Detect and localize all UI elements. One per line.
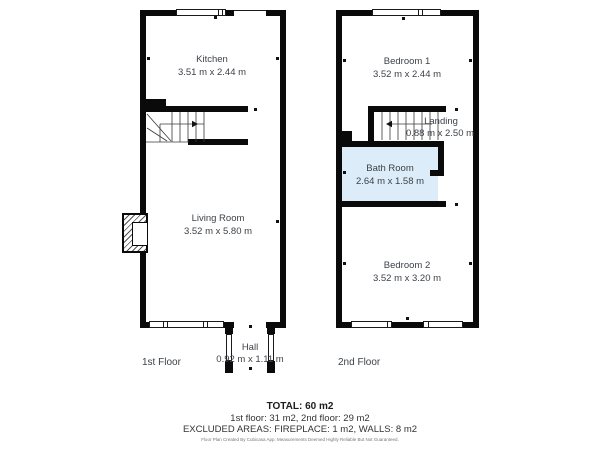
room-label-bath-room: Bath Room [366,164,414,174]
wall [140,10,176,16]
wall-opening-edge [234,10,266,11]
wall [140,10,146,328]
floor-plan-page: Kitchen 3.51 m x 2.44 m Living Room 3.52… [0,0,600,450]
wall [463,322,479,328]
room-dims-landing: 0.88 m x 2.50 m [406,129,474,139]
room-dims-kitchen: 3.51 m x 2.44 m [178,68,246,78]
tick [469,262,472,265]
room-dims-living-room: 3.52 m x 5.80 m [184,227,252,237]
window-mullion [428,322,429,327]
tick [455,108,458,111]
stair-direction-arrow [386,121,392,127]
room-label-living-room: Living Room [192,214,245,224]
wall [140,322,149,328]
wall [473,10,479,328]
window [149,321,224,328]
window-mullion [222,10,223,15]
window-mullion [203,322,204,327]
tick [343,262,346,265]
room-label-bedroom-2: Bedroom 2 [384,261,430,271]
floor-label-2nd: 2nd Floor [338,357,380,368]
bathroom-wall [342,201,446,207]
wall [336,10,342,328]
window [176,9,226,16]
stair-direction-arrow [192,121,198,127]
tick [455,203,458,206]
wall-notch [342,131,352,141]
floor-label-1st: 1st Floor [142,357,181,368]
wall [441,10,479,16]
window [351,321,392,328]
window-mullion [163,322,164,327]
hall-jamb [267,322,275,334]
tick [254,108,257,111]
summary-floor-areas: 1st floor: 31 m2, 2nd floor: 29 m2 [0,413,600,424]
wall [336,10,373,16]
tick [469,59,472,62]
tick [402,17,405,20]
tick [406,317,409,320]
tick [147,57,150,60]
tick [343,171,346,174]
tick [276,220,279,223]
tick [276,57,279,60]
stair-wall-notch [146,99,166,106]
room-dims-hall: 0.92 m x 1.11 m [216,355,283,365]
window-mullion [207,322,208,327]
window-mullion [218,10,219,15]
fireplace-icon [122,213,148,253]
tick [343,59,346,62]
wall [336,322,351,328]
firebox [132,222,148,246]
window-mullion [422,10,423,15]
staircase-icon [140,106,250,146]
tick [214,16,217,19]
room-dims-bath-room: 2.64 m x 1.58 m [356,177,424,187]
room-label-bedroom-1: Bedroom 1 [384,57,430,67]
window-mullion [167,322,168,327]
bathroom-wall [430,170,444,176]
room-dims-bedroom-2: 3.52 m x 3.20 m [373,274,441,284]
window [372,9,441,16]
window-mullion [387,322,388,327]
summary-disclaimer: Floor Plan Created By Cubicasa App. Meas… [0,437,600,442]
summary-total: TOTAL: 60 m2 [0,401,600,412]
tick [249,325,252,328]
wall [392,322,423,328]
bathroom-floor-fill [342,147,438,201]
window [423,321,463,328]
room-label-kitchen: Kitchen [196,55,228,65]
wall [226,10,234,16]
wall [280,10,286,328]
wall [266,10,286,16]
hall-jamb [225,322,233,334]
tick [249,367,252,370]
room-label-hall: Hall [242,343,258,353]
summary-excluded-areas: EXCLUDED AREAS: FIREPLACE: 1 m2, WALLS: … [0,424,600,435]
room-label-landing: Landing [424,117,458,127]
window-mullion [418,10,419,15]
room-dims-bedroom-1: 3.52 m x 2.44 m [373,70,441,80]
